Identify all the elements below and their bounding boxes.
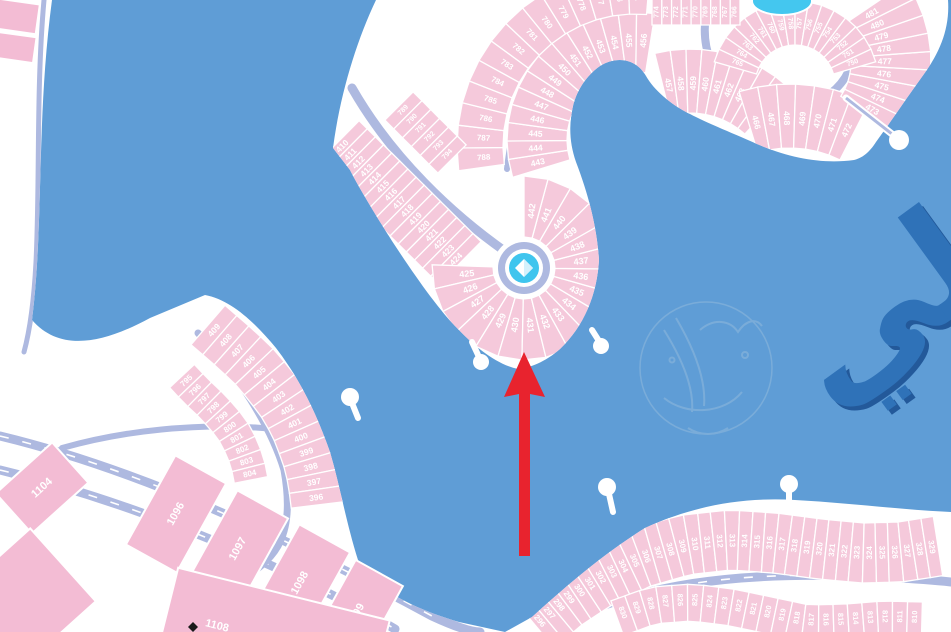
plot-number: 312 [715, 534, 725, 549]
plot-number: 459 [688, 76, 698, 91]
plot-number: 758 [786, 17, 794, 29]
plot-number: 810 [910, 610, 919, 623]
plot-number: 431 [524, 317, 536, 333]
plot-number: 324 [865, 546, 874, 560]
plot-number: 455 [624, 33, 635, 48]
plot-number: 770 [693, 6, 700, 18]
plot-number: 316 [765, 535, 775, 550]
plot-number: 814 [851, 612, 861, 626]
plot-number: 322 [839, 544, 849, 559]
plot-number: 812 [880, 610, 889, 623]
building-block[interactable] [0, 0, 40, 34]
plot-number: 824 [704, 594, 714, 608]
plot-number: 478 [876, 43, 892, 55]
plot-number: 825 [690, 593, 700, 606]
plot-number: 826 [675, 593, 684, 606]
plot-number: 787 [477, 133, 491, 143]
plot-number: 318 [789, 538, 800, 553]
building-block[interactable] [0, 31, 37, 63]
plot-number: 313 [728, 534, 737, 548]
plot-number: 317 [777, 536, 788, 551]
plot-number: 469 [797, 111, 808, 126]
plot-number: 326 [890, 545, 900, 559]
plot-number: 477 [878, 56, 893, 66]
plot-number: 772 [673, 6, 680, 18]
plot-number: 768 [712, 6, 719, 18]
plot-number: 757 [796, 17, 804, 29]
plot-number: 769 [702, 6, 709, 18]
plot-number: 321 [827, 542, 837, 557]
plot-parcel-775[interactable] [628, 0, 651, 15]
plot-number: 445 [528, 128, 543, 139]
plot-number: 425 [459, 268, 475, 279]
plot-number: 771 [683, 6, 690, 18]
plot-number: 788 [477, 152, 492, 162]
plot-number: 766 [732, 6, 739, 18]
plot-number: 468 [782, 111, 792, 126]
plot-number: 396 [308, 491, 324, 503]
plot-number: 456 [638, 33, 649, 48]
plot-number: 325 [877, 546, 886, 560]
plot-map: لي لي 4104114124134144154164174184194204… [0, 0, 951, 632]
plot-number: 437 [573, 255, 589, 267]
plot-number: 314 [740, 534, 750, 548]
plot-number: 815 [836, 613, 846, 626]
plot-number: 444 [528, 142, 543, 153]
plot-number: 773 [663, 6, 670, 18]
plot-number: 817 [806, 613, 816, 626]
plot-number: 767 [722, 6, 729, 18]
plot-number: 823 [719, 596, 730, 610]
plot-number: 476 [876, 68, 892, 80]
plot-number: 442 [526, 203, 538, 219]
plot-number: 467 [766, 112, 778, 128]
plot-number: 827 [660, 594, 670, 607]
plot-number: 813 [865, 611, 875, 624]
plot-band-band766: 774773772771770769768767766 [652, 0, 740, 25]
plot-number: 315 [752, 534, 762, 548]
plot-number: 458 [675, 76, 686, 91]
plot-number: 327 [902, 544, 913, 559]
plot-number: 436 [573, 270, 589, 282]
plot-number: 319 [802, 540, 813, 555]
plot-number: 323 [852, 545, 862, 559]
plot-number: 775 [634, 0, 643, 1]
plot-number: 774 [653, 6, 660, 18]
plot-number: 816 [821, 613, 830, 626]
plot-number: 320 [814, 541, 825, 556]
plot-number: 811 [895, 610, 904, 622]
plot-number: 311 [702, 536, 712, 550]
community-center-marker [493, 237, 555, 299]
plot-number: 460 [699, 76, 711, 92]
